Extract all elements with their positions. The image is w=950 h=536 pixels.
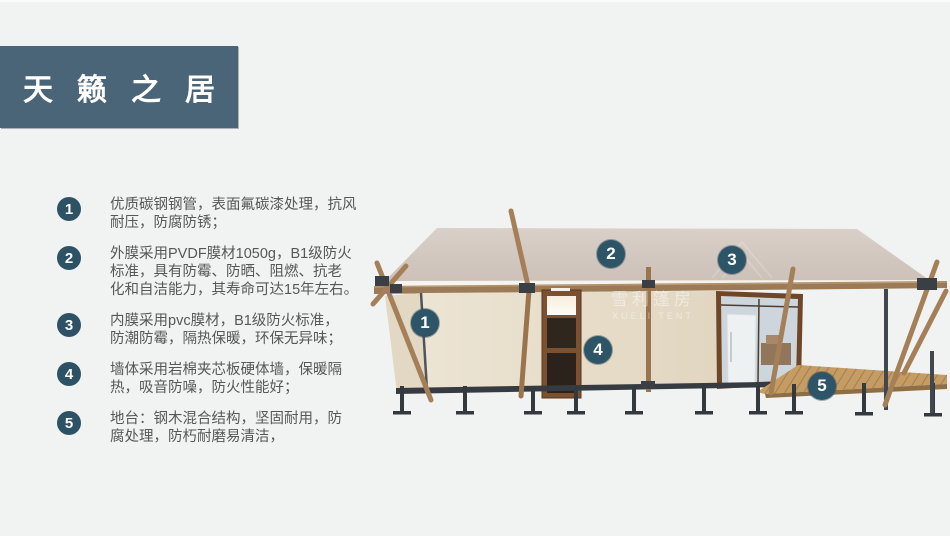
callout-badge-2: 2 xyxy=(597,240,625,268)
feature-list: 1 优质碳钢钢管，表面氟碳漆处理，抗风 耐压，防腐防锈； 2 外膜采用PVDF膜… xyxy=(57,196,369,459)
watermark-line2: XUELI TENT xyxy=(612,311,694,321)
slide: 天籁之居 1 优质碳钢钢管，表面氟碳漆处理，抗风 耐压，防腐防锈； 2 外膜采用… xyxy=(0,0,950,536)
bullet-number: 5 xyxy=(57,411,81,435)
list-item: 3 内膜采用pvc膜材，B1级防火标准， 防潮防霉，隔热保暖，环保无异味； xyxy=(57,312,369,348)
product-image: 雪利篷房 XUELI TENT xyxy=(370,207,950,442)
callout-badge-4: 4 xyxy=(584,336,612,364)
feature-text: 墙体采用岩棉夹芯板硬体墙，保暖隔 热，吸音防噪，防火性能好； xyxy=(110,361,368,397)
list-item: 5 地台：钢木混合结构，坚固耐用，防 腐处理，防朽耐磨易清洁， xyxy=(57,410,369,446)
feature-text: 内膜采用pvc膜材，B1级防火标准， 防潮防霉，隔热保暖，环保无异味； xyxy=(110,312,368,348)
watermark-line1: 雪利篷房 xyxy=(611,290,695,309)
feature-text: 优质碳钢钢管，表面氟碳漆处理，抗风 耐压，防腐防锈； xyxy=(110,196,368,232)
bullet-number: 3 xyxy=(57,313,81,337)
page-title: 天籁之居 xyxy=(23,65,239,109)
bullet-number: 1 xyxy=(57,197,81,221)
canopy-roof xyxy=(383,228,932,283)
bullet-number: 2 xyxy=(57,246,81,270)
watermark: 雪利篷房 XUELI TENT xyxy=(611,290,695,321)
feature-text: 外膜采用PVDF膜材1050g，B1级防火 标准，具有防霉、防晒、阻燃、抗老 化… xyxy=(110,245,368,299)
list-item: 2 外膜采用PVDF膜材1050g，B1级防火 标准，具有防霉、防晒、阻燃、抗老… xyxy=(57,245,369,299)
list-item: 1 优质碳钢钢管，表面氟碳漆处理，抗风 耐压，防腐防锈； xyxy=(57,196,369,232)
list-item: 4 墙体采用岩棉夹芯板硬体墙，保暖隔 热，吸音防噪，防火性能好； xyxy=(57,361,369,397)
tent-illustration: 雪利篷房 XUELI TENT xyxy=(370,207,950,442)
callout-badge-1: 1 xyxy=(411,309,439,337)
callout-badge-3: 3 xyxy=(718,246,746,274)
bullet-number: 4 xyxy=(57,362,81,386)
title-banner: 天籁之居 xyxy=(0,46,238,128)
feature-text: 地台：钢木混合结构，坚固耐用，防 腐处理，防朽耐磨易清洁， xyxy=(110,410,368,446)
entry-door xyxy=(542,288,581,398)
callout-badge-5: 5 xyxy=(808,372,836,400)
